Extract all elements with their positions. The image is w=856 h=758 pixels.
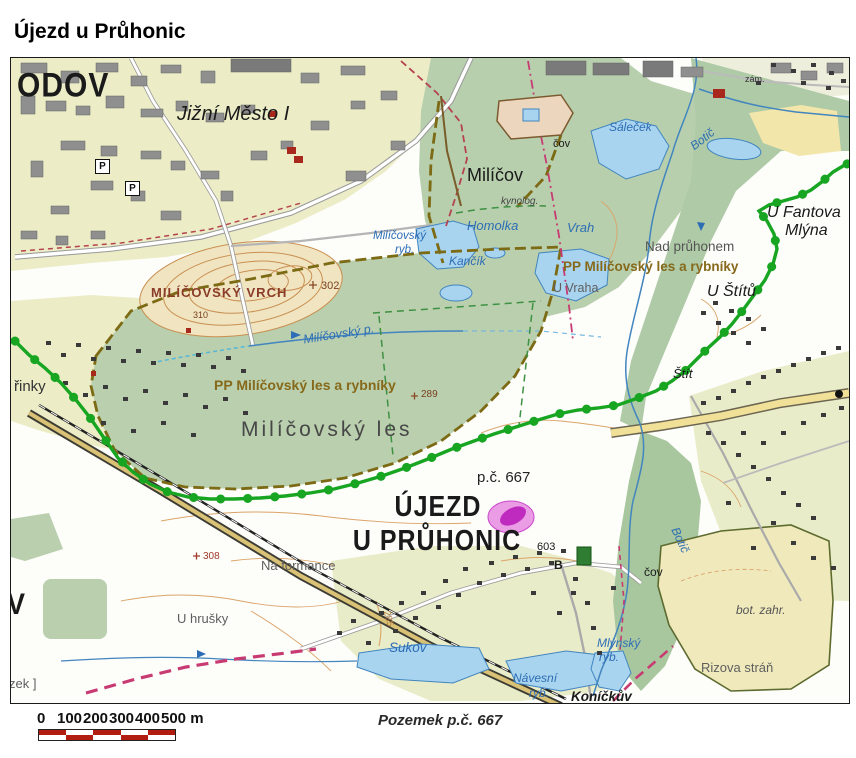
- label-603: 603: [537, 542, 555, 553]
- label-milicovsky-ryb-1: Milíčovský: [373, 231, 426, 243]
- label-zamek: zám.: [745, 75, 765, 84]
- label-ujezd-2: U PRŮHONIC: [353, 527, 521, 556]
- label-u-fantova-1: U Fantova: [767, 205, 841, 221]
- label-milicovsky-ryb-2: ryb.: [395, 245, 414, 257]
- page-title: Újezd u Průhonic: [14, 20, 186, 44]
- label-milicovsky-vrch: MILÍČOVSKÝ VRCH: [151, 286, 287, 299]
- label-u-hrusky: U hrušky: [177, 612, 228, 625]
- label-rizova-stran: Rizova stráň: [701, 661, 773, 674]
- label-salecek: Sáleček: [609, 121, 652, 133]
- green-building-marker: [577, 547, 591, 565]
- label-navesni-2: ryb.: [529, 687, 549, 699]
- label-elev-308: 308: [203, 552, 220, 562]
- parking-icon: P: [95, 159, 110, 174]
- label-cov-bottom: čov: [644, 566, 663, 578]
- label-mlynsky-1: Mlýnský: [597, 637, 640, 649]
- parking-icon: P: [125, 181, 140, 196]
- label-pp-reserve-west: PP Milíčovský les a rybníky: [214, 378, 396, 392]
- label-kynolog: kynolog.: [501, 197, 538, 207]
- label-b: B: [554, 559, 563, 571]
- label-konickuv: Koníčkův: [571, 690, 632, 704]
- label-chodov: ODOV: [17, 69, 109, 104]
- label-vrah: Vrah: [567, 221, 594, 234]
- label-elev-302: 302: [321, 281, 339, 292]
- label-ujezd-1: ÚJEZD: [395, 493, 482, 522]
- label-nad-pruhonem: Nad průhonem: [645, 240, 734, 254]
- label-bot-zahr: bot. zahr.: [736, 604, 786, 616]
- label-parcel-667: p.č. 667: [477, 470, 530, 485]
- label-katerinky-partial: řinky: [14, 379, 46, 394]
- report-page: { "page_title": "Újezd u Průhonic", "cap…: [0, 0, 856, 758]
- scale-tick: 500 m: [161, 710, 204, 727]
- label-elev-289: 289: [421, 390, 438, 400]
- label-mlynsky-2: ryb.: [599, 651, 619, 663]
- label-milicov: Milíčov: [467, 166, 523, 184]
- scale-tick: 200: [83, 710, 108, 727]
- scale-bar: 0 100 200 300 400 500 m: [36, 710, 256, 750]
- scale-tick: 300: [109, 710, 134, 727]
- map-graphics: [11, 58, 849, 703]
- label-v-partial: V: [10, 590, 25, 620]
- map-canvas[interactable]: ODOV Jižní Město I Milíčov čov kynolog. …: [10, 57, 850, 704]
- scale-tick: 0: [37, 710, 45, 727]
- label-homolka: Homolka: [467, 219, 518, 232]
- label-milicovsky-les: Milíčovský les: [241, 419, 413, 440]
- map-caption: Pozemek p.č. 667: [378, 712, 502, 729]
- label-u-stitu: U Štítů: [707, 284, 756, 300]
- label-sukov: Sukov: [389, 641, 427, 655]
- label-kancik: Kančík: [449, 255, 486, 267]
- label-pp-reserve-east: PP Milíčovský les a rybníky: [563, 260, 738, 274]
- label-elev-310: 310: [193, 311, 208, 320]
- label-navesni-1: Návesní: [513, 672, 557, 684]
- label-u-fantova-2: Mlýna: [785, 223, 828, 239]
- label-zek-partial: zek ]: [10, 677, 36, 690]
- label-jizni-mesto: Jižní Město I: [177, 104, 289, 124]
- scale-tick: 400: [135, 710, 160, 727]
- label-na-formance: Na formance: [261, 559, 335, 572]
- label-cov-top: čov: [553, 139, 570, 150]
- scale-bar-graphic: [38, 729, 176, 741]
- label-stit: Štít: [673, 367, 693, 380]
- trailhead-dot: [835, 390, 843, 398]
- label-u-vraha: U Vraha: [553, 282, 598, 295]
- scale-tick: 100: [57, 710, 82, 727]
